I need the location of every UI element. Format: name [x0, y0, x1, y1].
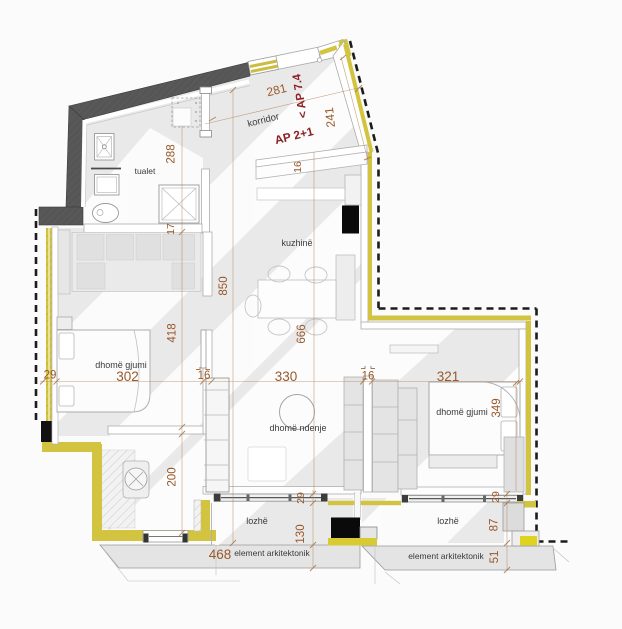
svg-text:288: 288	[166, 144, 178, 163]
svg-text:dhomë gjumi: dhomë gjumi	[95, 360, 147, 370]
svg-text:330: 330	[275, 369, 298, 384]
svg-text:349: 349	[491, 398, 503, 417]
svg-text:16: 16	[292, 161, 304, 173]
svg-text:29: 29	[490, 491, 502, 503]
svg-text:418: 418	[167, 323, 179, 342]
svg-text:302: 302	[116, 369, 139, 384]
svg-text:16: 16	[198, 370, 211, 382]
svg-text:element arkitektonik: element arkitektonik	[408, 551, 484, 561]
svg-text:tualet: tualet	[135, 166, 156, 176]
svg-text:16: 16	[362, 371, 375, 383]
svg-text:29: 29	[295, 492, 307, 504]
svg-text:kuzhinë: kuzhinë	[281, 238, 312, 248]
svg-text:lozhë: lozhë	[246, 516, 268, 526]
svg-text:dhomë ndenje: dhomë ndenje	[269, 423, 326, 433]
svg-text:468: 468	[209, 547, 232, 562]
svg-text:850: 850	[218, 276, 230, 295]
svg-text:17: 17	[165, 223, 177, 235]
svg-text:241: 241	[322, 106, 338, 128]
svg-text:29: 29	[44, 370, 57, 382]
svg-text:200: 200	[167, 467, 179, 486]
svg-text:element arkitektonik: element arkitektonik	[234, 548, 310, 558]
svg-text:666: 666	[296, 324, 308, 343]
svg-text:321: 321	[437, 369, 460, 384]
svg-text:dhomë gjumi: dhomë gjumi	[436, 407, 488, 417]
svg-text:130: 130	[295, 524, 307, 543]
svg-text:87: 87	[489, 519, 501, 532]
svg-text:lozhë: lozhë	[437, 516, 459, 526]
svg-text:51: 51	[489, 551, 501, 564]
